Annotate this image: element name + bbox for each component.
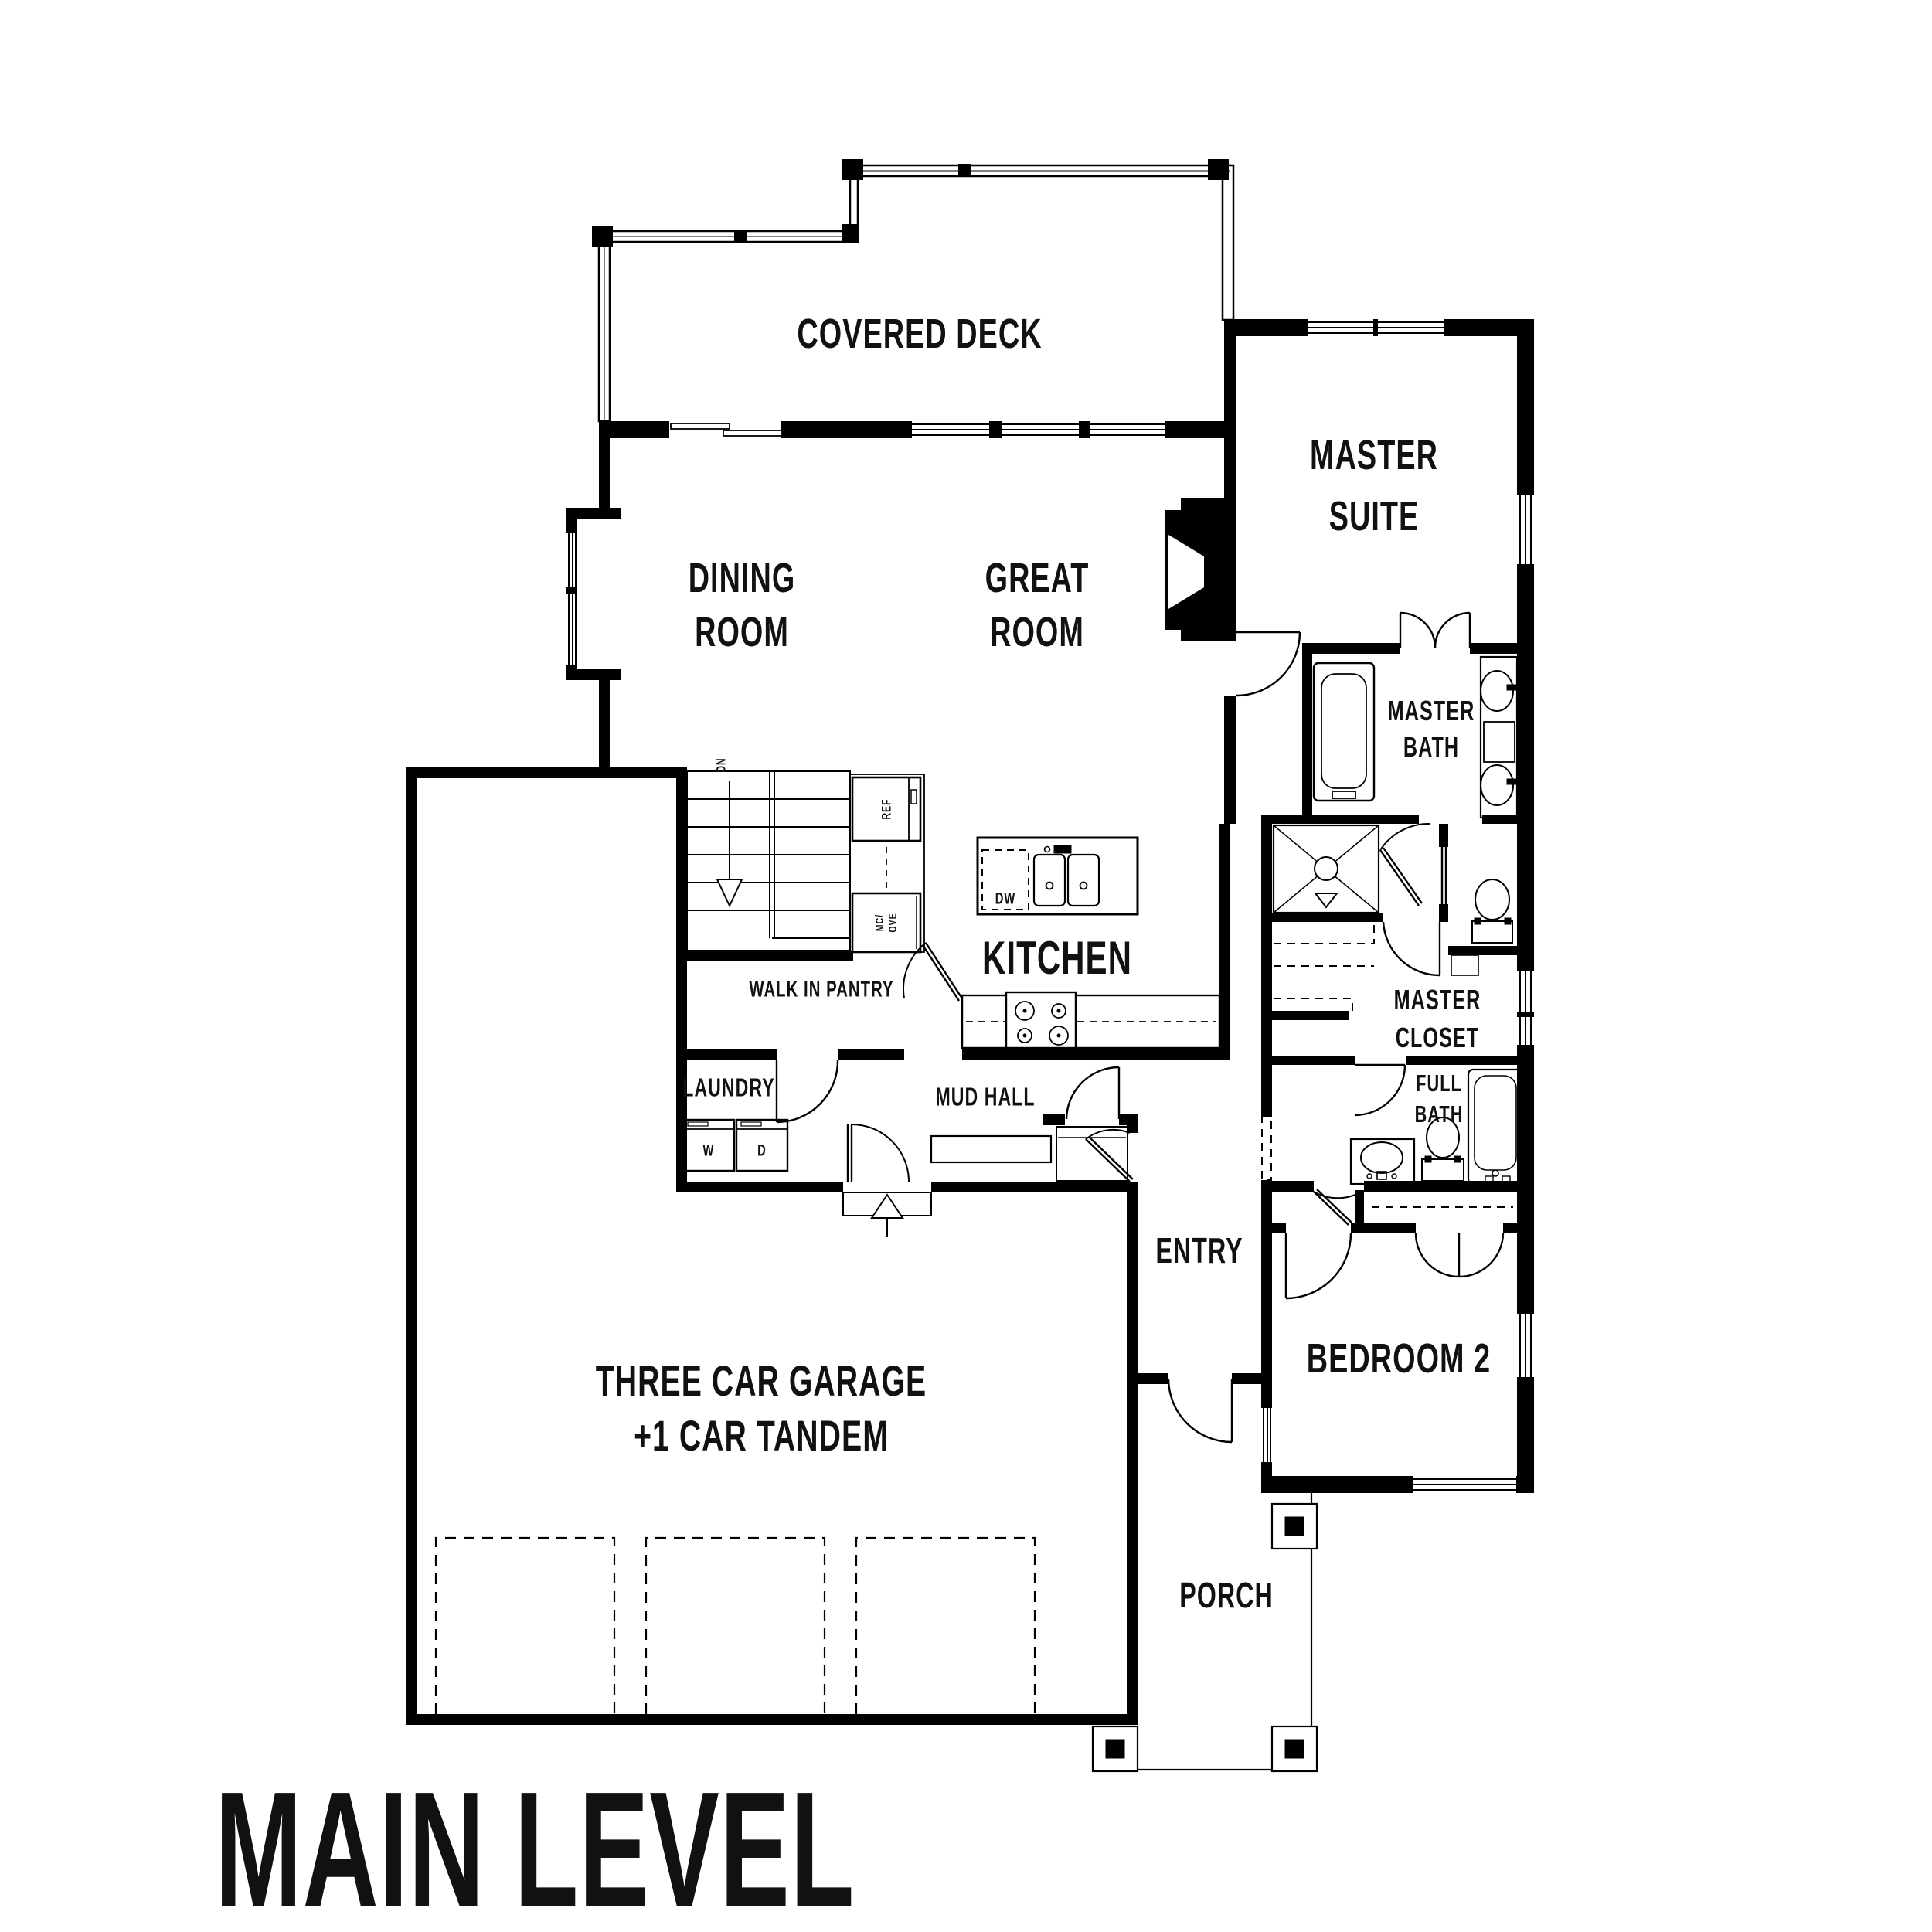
room-label-master-suite: MASTERSUITE (1310, 425, 1438, 547)
door-swing (1066, 1067, 1119, 1119)
room-label-master-closet: MASTERCLOSET (1394, 981, 1481, 1056)
floor-plan-drawing (0, 0, 1932, 1932)
garage-doors (436, 1538, 1035, 1714)
window (1517, 1017, 1534, 1045)
door-swing (1236, 632, 1300, 696)
fixture-label-washer: W (703, 1143, 715, 1159)
closet-double-doors (1416, 1233, 1503, 1277)
door-swing (777, 1060, 838, 1122)
garage-door-3 (856, 1538, 1035, 1714)
door-swing (1355, 1065, 1405, 1115)
door-swing (1383, 922, 1440, 975)
front-door-swing (1168, 1379, 1232, 1442)
sliding-door (669, 421, 782, 438)
floor-plan: COVERED DECKMASTERSUITEDININGROOMGREATRO… (0, 0, 1932, 1932)
bench (931, 1136, 1051, 1162)
shower-door (1380, 824, 1430, 906)
window (1413, 1476, 1516, 1493)
room-label-porch: PORCH (1179, 1577, 1274, 1613)
window (1002, 421, 1079, 438)
room-label-dining-room: DININGROOM (689, 551, 796, 659)
cased-openings (1262, 1117, 1271, 1180)
range (1006, 992, 1076, 1048)
bathtub (1314, 663, 1374, 801)
window (912, 421, 989, 438)
toilet-master (1472, 879, 1512, 943)
porch-post (1272, 1504, 1317, 1549)
room-label-walk-in-pantry: WALK IN PANTRY (749, 979, 893, 1002)
porch-structure (1093, 1493, 1317, 1771)
fixture-label-dryer: D (757, 1143, 767, 1159)
room-label-master-bath: MASTERBATH (1388, 692, 1475, 765)
stairs (687, 771, 850, 951)
room-label-three-car-garage: THREE CAR GARAGE+1 CAR TANDEM (596, 1353, 927, 1463)
double-vanity (1481, 657, 1517, 818)
room-label-full-bath: FULLBATH (1415, 1068, 1464, 1130)
window (1090, 421, 1165, 438)
window (1517, 495, 1534, 564)
porch-post (1272, 1726, 1317, 1771)
french-doors (1400, 613, 1470, 648)
room-label-mud-hall: MUD HALL (935, 1084, 1035, 1110)
kitchen-fixtures (850, 774, 1219, 1048)
laundry-fixtures (683, 1120, 787, 1171)
garage-step (843, 1192, 931, 1237)
window (1308, 319, 1373, 336)
fixture-label-micro-oven: MC/OVE (873, 913, 900, 932)
floor-title: MAIN LEVEL (215, 1784, 855, 1915)
linen-shelf (1451, 955, 1478, 975)
window (566, 533, 577, 587)
room-label-kitchen: KITCHEN (982, 935, 1132, 981)
window (1378, 319, 1444, 336)
room-label-covered-deck: COVERED DECK (797, 307, 1042, 361)
bathtub-full-bath (1468, 1070, 1522, 1184)
vanity-sink (1351, 1139, 1414, 1184)
window (1517, 1314, 1534, 1377)
fireplace (1165, 498, 1236, 641)
door-swing (1286, 1233, 1351, 1298)
fixture-label-stairs-down: DN (715, 757, 728, 772)
porch-post (1093, 1726, 1138, 1771)
garage-door-2 (646, 1538, 825, 1714)
window (1517, 971, 1534, 1012)
room-label-great-room: GREATROOM (985, 551, 1090, 659)
shower (1274, 825, 1379, 913)
room-label-entry: ENTRY (1155, 1233, 1243, 1268)
kitchen-sink (1034, 845, 1099, 906)
room-label-bedroom-2: BEDROOM 2 (1307, 1338, 1491, 1379)
kitchen-counter-bottom (962, 992, 1219, 1048)
room-label-laundry: LAUNDRY (682, 1075, 774, 1100)
pocket-door (1442, 847, 1446, 904)
garage-door-1 (436, 1538, 614, 1714)
window (1261, 1408, 1272, 1462)
fixture-label-dishwasher: DW (995, 891, 1016, 907)
door-swing (848, 1124, 909, 1182)
window (566, 594, 577, 665)
door-swing (1314, 1189, 1362, 1225)
fixture-label-refrigerator: REF (880, 799, 893, 820)
deck-railing (599, 165, 1233, 421)
